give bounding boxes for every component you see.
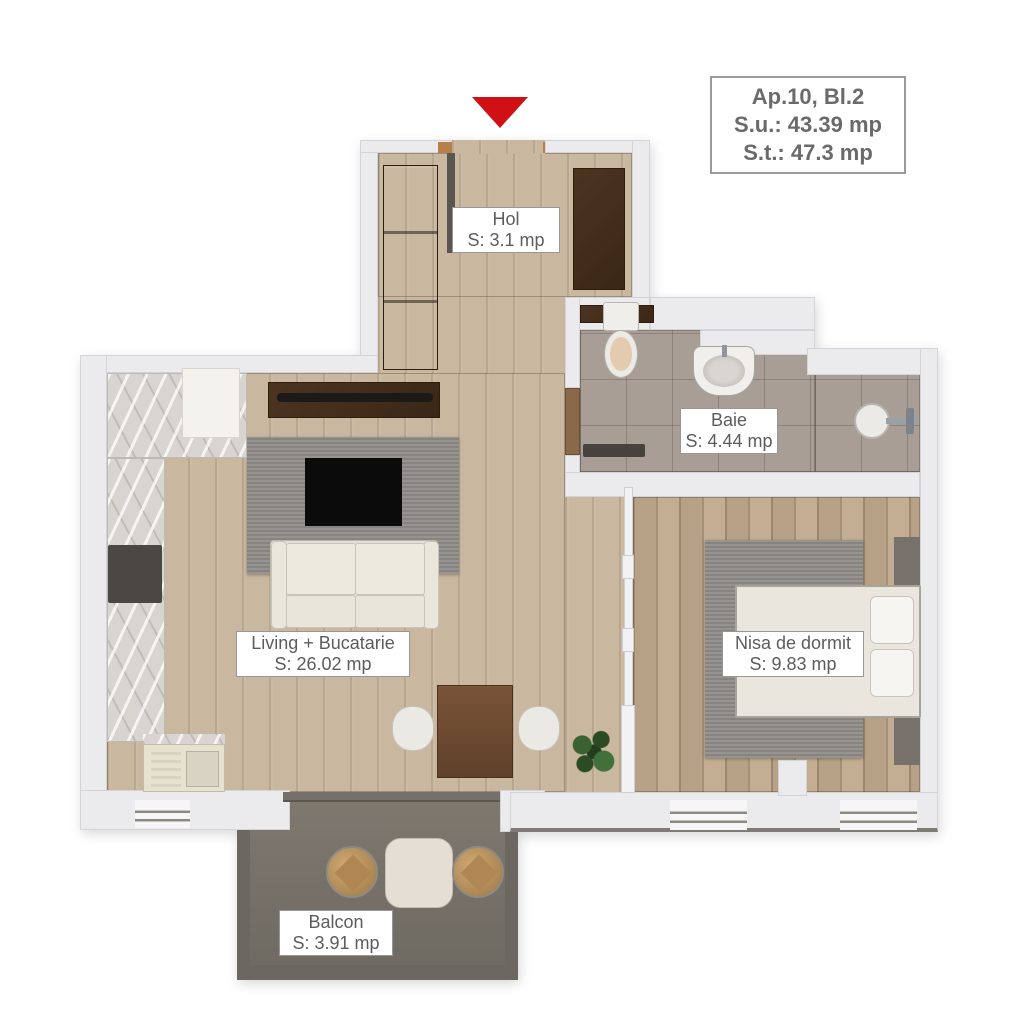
pillow bbox=[870, 596, 914, 644]
balcony-table bbox=[385, 838, 453, 908]
balcony-wall-bottom bbox=[237, 965, 518, 980]
wall-hol-left bbox=[360, 140, 378, 373]
tv-soundbar bbox=[277, 393, 433, 402]
bath-sink-bowl bbox=[703, 355, 745, 387]
pillow bbox=[870, 649, 914, 697]
total-area: S.t.: 47.3 mp bbox=[716, 139, 900, 167]
balcony-chair-seat bbox=[335, 855, 372, 892]
sofa-arm-left bbox=[271, 541, 287, 629]
room-label-baie: Baie S: 4.44 mp bbox=[680, 408, 778, 454]
wall-bath-top-east bbox=[807, 348, 938, 375]
shower-head bbox=[854, 403, 890, 439]
partition-post-bottom bbox=[621, 705, 635, 793]
apartment-id: Ap.10, Bl.2 bbox=[716, 83, 900, 111]
room-area: S: 26.02 mp bbox=[239, 654, 407, 675]
hol-wardrobe-left bbox=[383, 165, 438, 370]
dining-chair-right bbox=[518, 706, 560, 751]
tv-screen bbox=[305, 458, 402, 526]
towel-radiator bbox=[583, 444, 645, 457]
room-name: Balcon bbox=[282, 912, 390, 933]
sofa-seat-cushion bbox=[286, 595, 356, 628]
wall-left bbox=[80, 355, 107, 830]
kitchen-sink-counter bbox=[143, 734, 225, 744]
wall-bath-left-upper bbox=[565, 297, 580, 388]
wall-pillar bbox=[778, 760, 807, 796]
toilet-seat bbox=[610, 337, 632, 371]
balcony-chair-left bbox=[326, 846, 378, 898]
tv-cabinet bbox=[268, 382, 440, 418]
cooktop bbox=[108, 545, 162, 603]
bath-door-threshold bbox=[565, 388, 580, 455]
partition-post-a bbox=[622, 555, 634, 579]
sofa bbox=[270, 540, 438, 628]
room-area: S: 4.44 mp bbox=[683, 431, 775, 452]
entrance-arrow-icon bbox=[472, 97, 528, 128]
fridge bbox=[182, 368, 240, 438]
dining-table bbox=[437, 685, 513, 778]
room-area: S: 3.91 mp bbox=[282, 933, 390, 954]
room-name: Nisa de dormit bbox=[725, 633, 861, 654]
entrance-threshold bbox=[452, 140, 545, 154]
apartment-info-box: Ap.10, Bl.2 S.u.: 43.39 mp S.t.: 47.3 mp bbox=[710, 76, 906, 174]
room-label-hol: Hol S: 3.1 mp bbox=[452, 207, 560, 253]
balcony-chair-seat bbox=[461, 855, 498, 892]
window-bedroom-2 bbox=[840, 800, 917, 830]
window-kitchen bbox=[135, 800, 190, 828]
room-label-balcon: Balcon S: 3.91 mp bbox=[279, 910, 393, 956]
wall-bath-top bbox=[650, 297, 815, 330]
shower-handle bbox=[906, 408, 914, 434]
sofa-back-cushion bbox=[355, 543, 425, 595]
room-label-nisa: Nisa de dormit S: 9.83 mp bbox=[722, 631, 864, 677]
wall-right bbox=[920, 348, 938, 832]
sofa-seat-cushion bbox=[355, 595, 425, 628]
wall-bath-bottom bbox=[565, 472, 920, 497]
balcony-chair-right bbox=[452, 846, 504, 898]
floorplan-page: Ap.10, Bl.2 S.u.: 43.39 mp S.t.: 47.3 mp bbox=[0, 0, 1016, 1024]
sink-drainer bbox=[151, 751, 181, 787]
bath-sink-tap bbox=[722, 345, 727, 357]
sofa-arm-right bbox=[423, 541, 439, 629]
sink-basin bbox=[186, 751, 219, 787]
room-area: S: 3.1 mp bbox=[455, 230, 557, 251]
bath-sink bbox=[693, 346, 755, 396]
room-name: Hol bbox=[455, 209, 557, 230]
kitchen-sink-unit bbox=[143, 744, 225, 792]
window-bedroom-1 bbox=[670, 800, 747, 830]
room-area: S: 9.83 mp bbox=[725, 654, 861, 675]
entrance-jamb-left bbox=[438, 142, 452, 153]
potted-plant bbox=[566, 726, 620, 780]
hol-wardrobe-right bbox=[573, 168, 625, 290]
toilet-bowl bbox=[604, 330, 638, 378]
room-label-living: Living + Bucatarie S: 26.02 mp bbox=[236, 631, 410, 677]
dining-chair-left bbox=[392, 706, 434, 751]
partition-post-b bbox=[622, 628, 634, 652]
toilet-tank bbox=[603, 302, 639, 331]
useful-area: S.u.: 43.39 mp bbox=[716, 111, 900, 139]
sofa-back-cushion bbox=[286, 543, 356, 595]
room-name: Living + Bucatarie bbox=[239, 633, 407, 654]
balcony-door-threshold bbox=[283, 792, 505, 802]
room-name: Baie bbox=[683, 410, 775, 431]
